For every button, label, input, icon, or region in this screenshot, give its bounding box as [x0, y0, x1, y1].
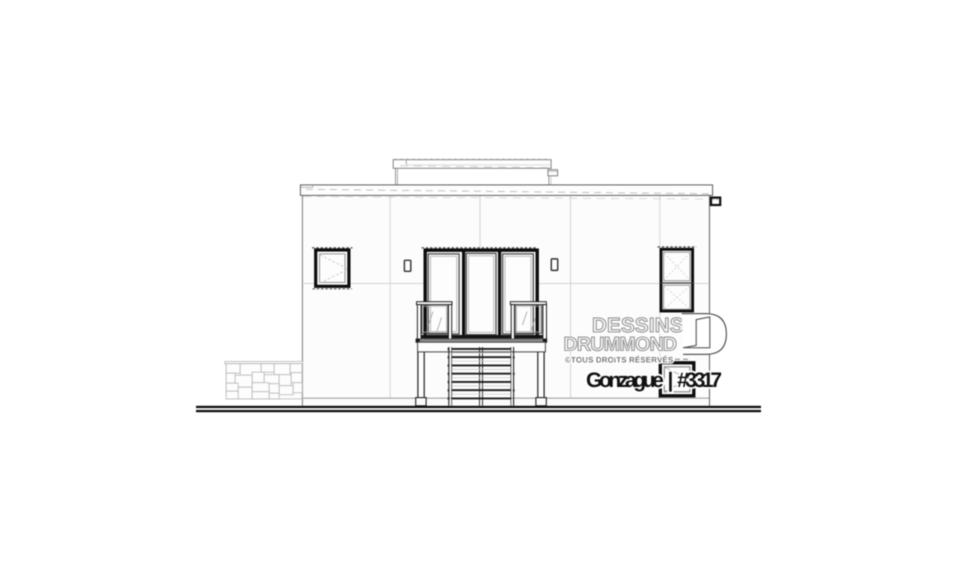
svg-text:Gonzague | #3317: Gonzague | #3317 — [586, 369, 722, 392]
svg-text:©TOUS DROITS RÉSERVÉS: ©TOUS DROITS RÉSERVÉS — [565, 354, 674, 364]
svg-text:DRUMMOND: DRUMMOND — [564, 334, 678, 356]
